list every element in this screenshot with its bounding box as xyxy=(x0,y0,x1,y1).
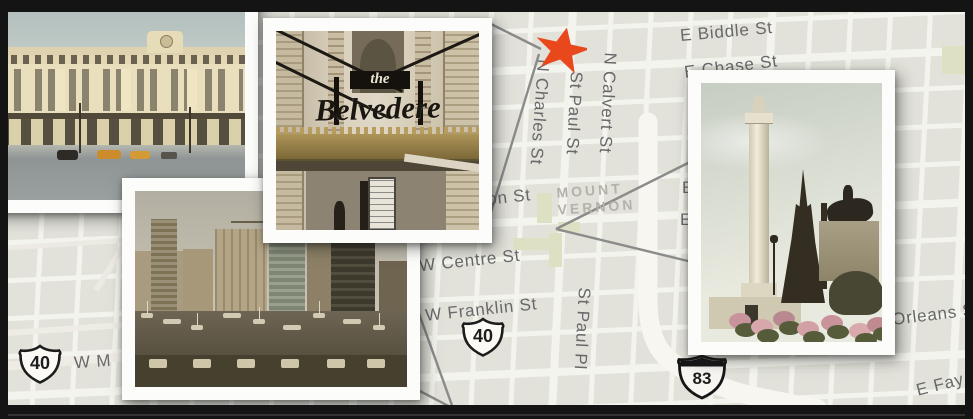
foliage xyxy=(757,329,779,342)
interstate-83-shield: 83 xyxy=(677,354,727,400)
foliage xyxy=(803,331,825,342)
boat xyxy=(163,319,181,324)
car xyxy=(161,152,177,159)
us-route-40-shield-west: 40 xyxy=(17,343,63,385)
boat xyxy=(343,319,361,324)
boat xyxy=(223,313,241,318)
star-marker[interactable] xyxy=(525,28,587,82)
frame-bar-right xyxy=(965,0,973,419)
boat-mast xyxy=(379,313,380,326)
penn-station-image xyxy=(0,0,245,200)
car xyxy=(57,150,78,160)
taxi xyxy=(97,150,121,159)
frame-bar-bottom xyxy=(0,405,973,419)
taxi xyxy=(130,151,150,159)
route-number: 40 xyxy=(460,326,506,347)
tent xyxy=(193,359,211,368)
foliage xyxy=(827,325,849,339)
tent xyxy=(237,359,255,368)
lamp-post xyxy=(773,241,775,295)
boat xyxy=(283,325,301,330)
poster-sign xyxy=(368,177,396,230)
harbor-water xyxy=(135,311,407,357)
photo-belvedere[interactable]: the Belvedere xyxy=(263,18,492,243)
lamp-post xyxy=(79,103,81,153)
lamp-post xyxy=(189,107,191,153)
tent xyxy=(367,359,385,368)
leader-line xyxy=(556,229,692,262)
route-number: 83 xyxy=(677,369,727,389)
boat-mast xyxy=(197,313,198,326)
belvedere-sign-the: the xyxy=(350,71,410,89)
marquee-canopy xyxy=(276,134,479,162)
boat-mast xyxy=(319,301,320,314)
frame-bar-top xyxy=(0,0,973,12)
us-route-40-shield-center: 40 xyxy=(460,316,506,358)
frame-bar-left xyxy=(0,0,8,419)
belvedere-sign-name: Belvedere xyxy=(284,89,473,130)
monument-column xyxy=(749,113,769,293)
boat-mast xyxy=(147,301,148,314)
map-collage: E Biddle St E Chase St N Charles St St P… xyxy=(0,0,973,419)
monument-statue xyxy=(753,95,765,115)
tent xyxy=(327,359,345,368)
photo-washington-monument[interactable] xyxy=(688,70,895,355)
route-number: 40 xyxy=(17,353,63,374)
belvedere-image: the Belvedere xyxy=(276,31,479,230)
boat-mast xyxy=(259,307,260,320)
neighborhood-label: MOUNT VERNON xyxy=(556,179,636,218)
star-icon xyxy=(531,28,587,76)
washington-monument-image xyxy=(701,83,882,342)
tent xyxy=(149,359,167,368)
street-label-w-mulberry: W M xyxy=(73,351,112,374)
tent xyxy=(281,359,299,368)
bush xyxy=(829,271,882,315)
person xyxy=(334,201,345,230)
